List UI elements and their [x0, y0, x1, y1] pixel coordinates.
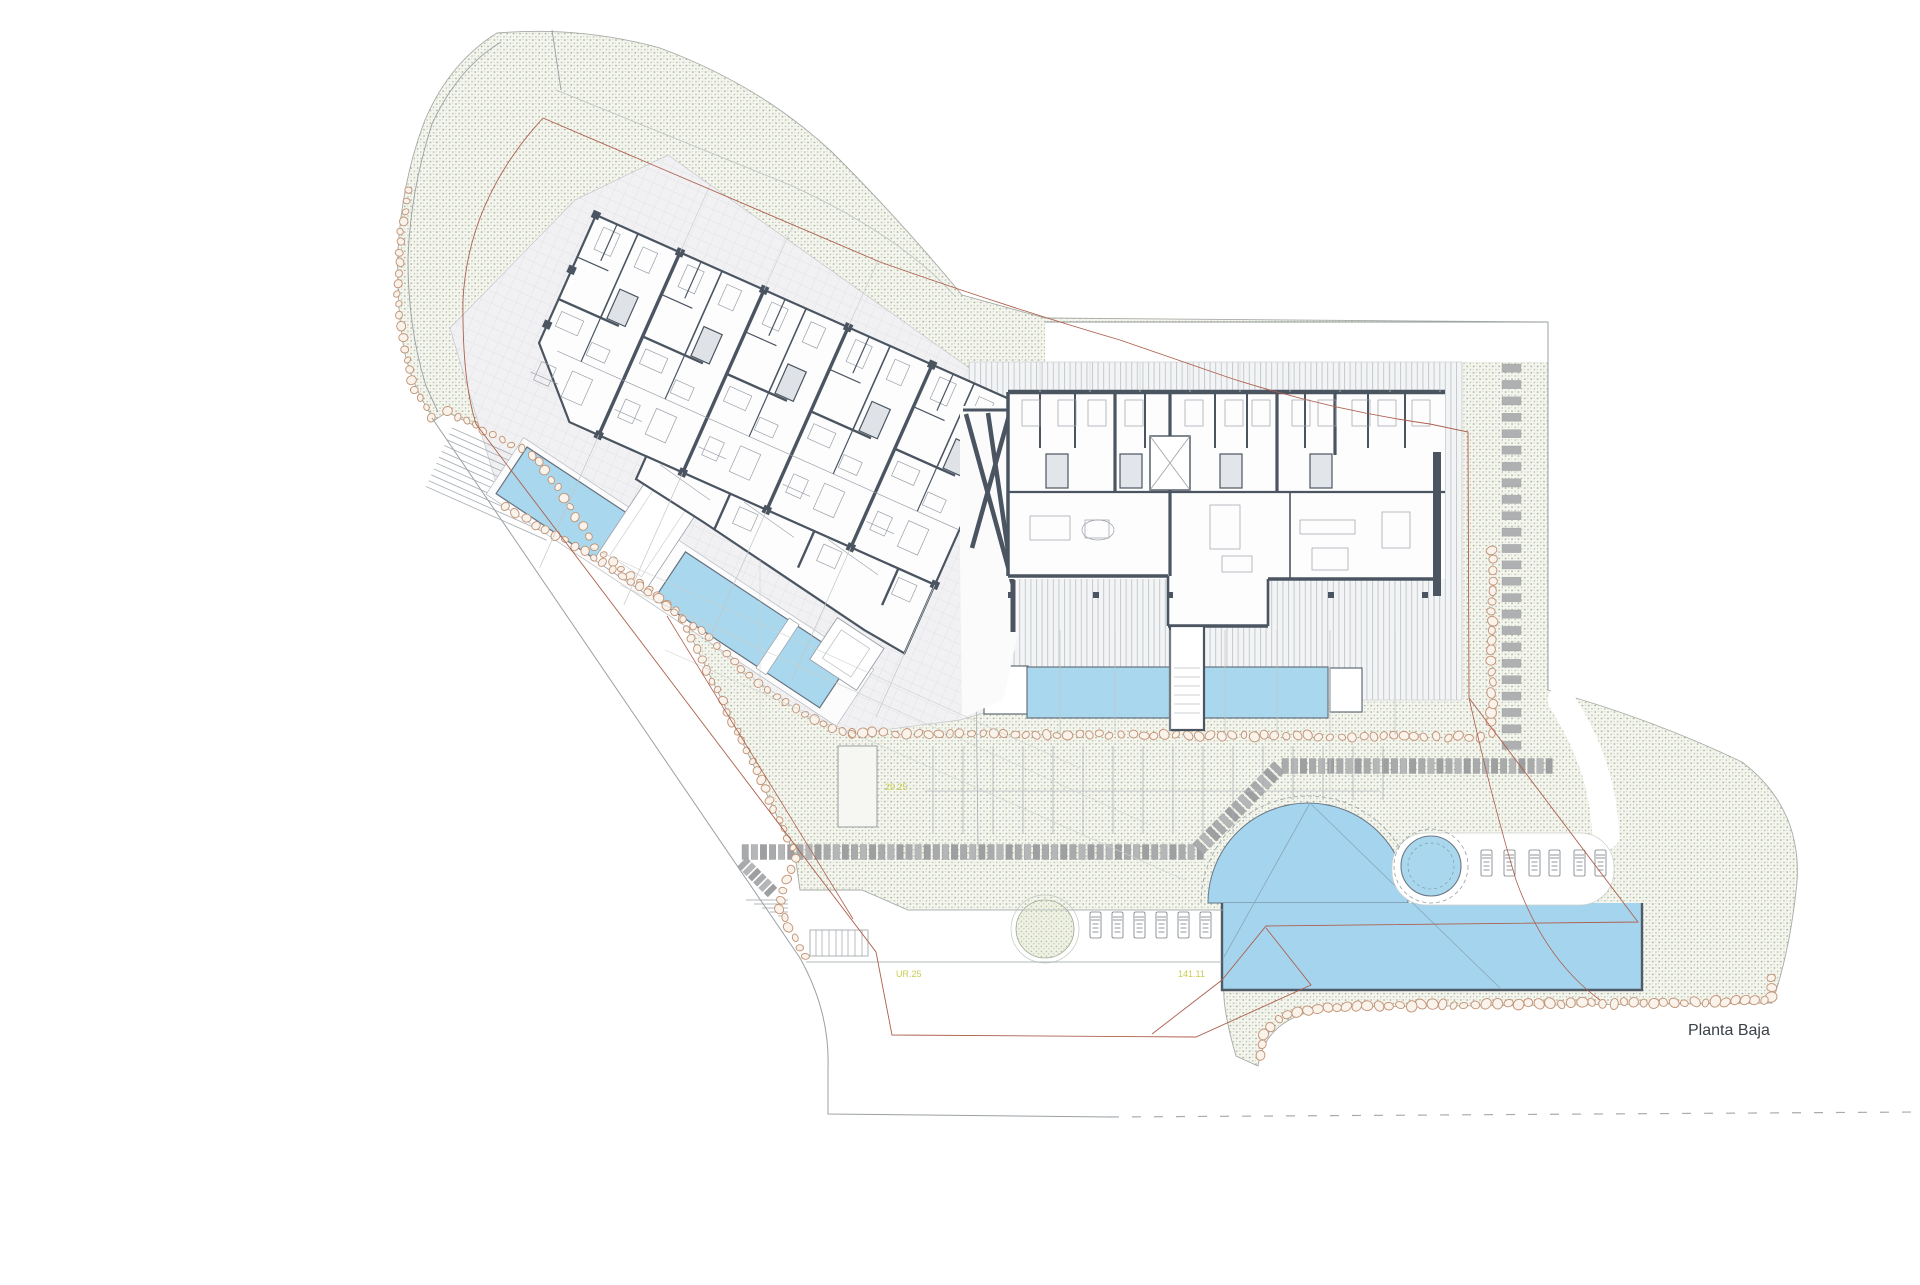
- svg-text:29.25: 29.25: [885, 782, 908, 792]
- svg-text:UR.25: UR.25: [896, 969, 922, 979]
- svg-text:Planta Baja: Planta Baja: [1688, 1022, 1770, 1039]
- svg-text:141.11: 141.11: [1178, 969, 1205, 979]
